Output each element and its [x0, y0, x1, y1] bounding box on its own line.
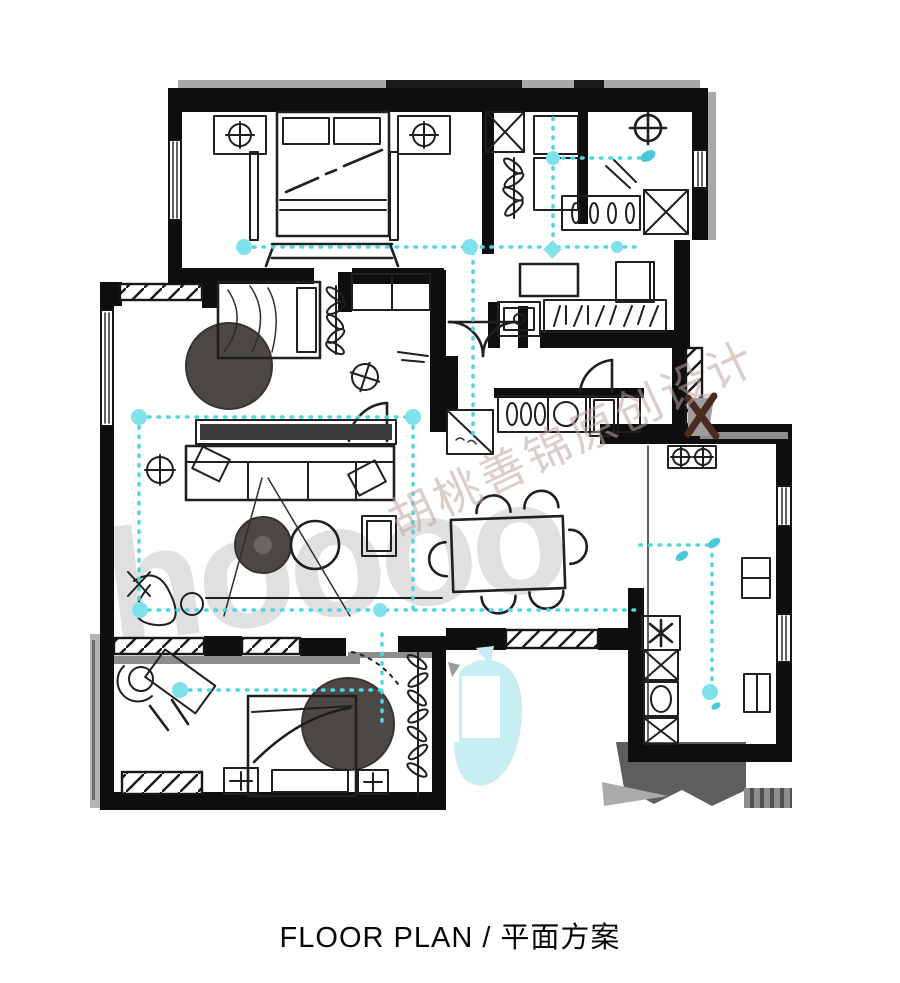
highlight-area — [447, 646, 522, 786]
hanger-box — [562, 196, 640, 230]
pillow — [297, 288, 316, 352]
shelf — [534, 158, 578, 210]
window-right-b — [777, 614, 791, 662]
hall-chair — [616, 262, 654, 302]
footboard — [272, 770, 348, 792]
pillow — [334, 118, 380, 144]
burner — [521, 403, 531, 425]
walk-in-closet — [486, 112, 578, 218]
floor-plan-drawing: hoooo — [0, 0, 900, 983]
entry-door-arc — [449, 322, 483, 356]
cyan-leaf — [639, 148, 658, 165]
throw-pillow — [192, 447, 229, 482]
cyan-leaf — [674, 549, 690, 564]
blanket-line — [286, 150, 382, 192]
pillow — [283, 118, 329, 144]
window-master-left — [169, 140, 181, 220]
ceiling-lamp-icon — [346, 358, 384, 396]
shelf-marks — [398, 352, 428, 362]
floor-plan-page: hoooo — [0, 0, 900, 983]
cyan-leaf — [710, 701, 722, 711]
round-rug-bedroom3 — [302, 678, 394, 770]
cyan-leaf — [706, 536, 722, 551]
round-rug-bedroom2 — [186, 323, 272, 409]
caption: FLOOR PLAN / 平面方案 — [0, 914, 900, 956]
dining-chair — [569, 529, 587, 564]
coat-closet — [544, 300, 666, 332]
coat-hangers — [554, 306, 658, 326]
light-node-diamond — [543, 240, 561, 258]
kitchen-door-arc — [580, 360, 612, 392]
shelf — [534, 116, 578, 154]
window-living-left — [101, 310, 113, 426]
window-right-top — [693, 150, 707, 188]
plant — [650, 620, 672, 646]
window-right-a — [777, 486, 791, 526]
burner — [507, 403, 517, 425]
hall-table — [520, 264, 578, 296]
burner — [535, 403, 545, 425]
towel-rail — [606, 160, 636, 188]
washing-machine — [644, 682, 678, 716]
